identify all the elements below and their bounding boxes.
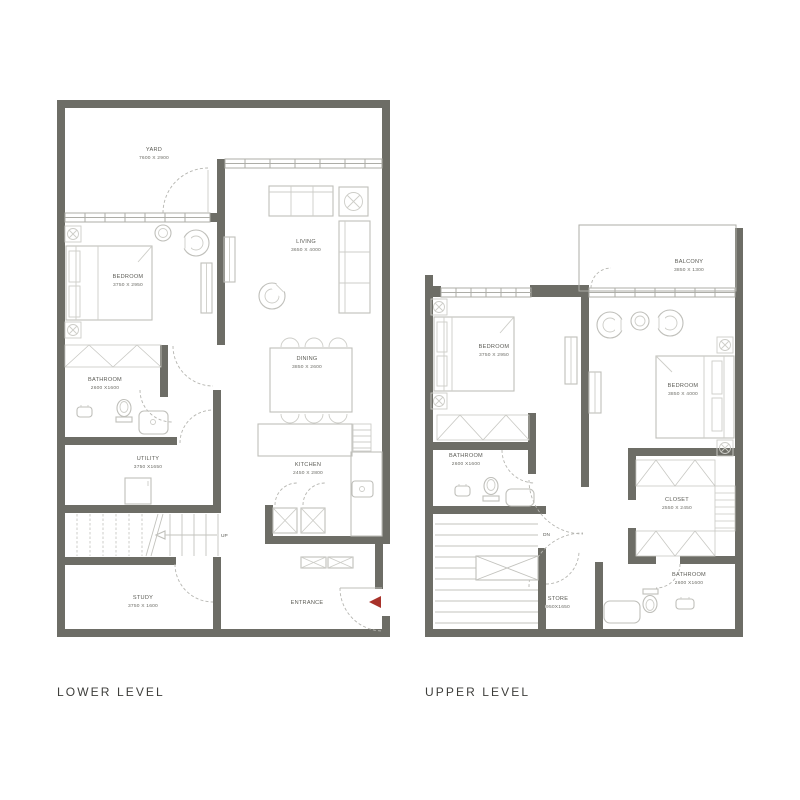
- nightstand-icon: [65, 226, 81, 242]
- washing-machine-icon: [125, 478, 151, 504]
- kitchen-sink-icon: [352, 481, 373, 497]
- room-label-balcony: BALCONY: [675, 259, 704, 265]
- room-label-bathroom: BATHROOM: [88, 377, 122, 383]
- lower-stairs: [77, 514, 218, 556]
- stairs-dn-label: DN: [543, 532, 550, 538]
- room-label-bedroom: BEDROOM: [113, 274, 144, 280]
- room-dims-kitchen: 2450 X 2800: [293, 470, 323, 476]
- bed-icon: [656, 356, 734, 438]
- store-door-swing: [546, 551, 579, 584]
- room-dims-balcony: 3850 X 1300: [674, 267, 704, 273]
- room-dims-living: 3650 X 4000: [291, 247, 321, 253]
- nightstand-icon: [431, 299, 447, 315]
- room-label-entrance: ENTRANCE: [291, 600, 324, 606]
- room-label-utility: UTILITY: [137, 456, 160, 462]
- lower-level-plan: YARD 7600 X 2900 BEDROOM 3750 X 2950 LIV…: [57, 100, 390, 637]
- shoe-cabinet-icon: [301, 557, 353, 568]
- coffee-table-icon: [631, 312, 649, 330]
- stairs-up-label: UP: [221, 533, 228, 539]
- room-dims-utility: 3750 X1650: [134, 464, 162, 470]
- kitchen-island-icon: [258, 424, 352, 456]
- room-label-kitchen: KITCHEN: [295, 462, 321, 468]
- sofa-icon: [339, 221, 370, 313]
- washbasin-icon: [77, 405, 92, 417]
- nightstand-icon: [431, 393, 447, 409]
- armchair-icon: [254, 275, 294, 315]
- upper-stairs: [435, 524, 538, 623]
- room-dims-bathroom-right: 2600 X1600: [675, 580, 703, 586]
- toilet-icon: [483, 478, 499, 502]
- upper-level-plan: BALCONY 3850 X 1300 BEDROOM 3750 X 2950 …: [425, 225, 743, 637]
- room-dims-bathroom: 2600 X1600: [91, 385, 119, 391]
- room-label-bathroom-left: BATHROOM: [449, 453, 483, 459]
- room-label-bathroom-right: BATHROOM: [672, 572, 706, 578]
- nightstand-icon: [717, 337, 733, 353]
- room-dims-yard: 7600 X 2900: [139, 155, 169, 161]
- room-label-closet: CLOSET: [665, 497, 689, 503]
- toilet-icon: [116, 400, 132, 423]
- room-dims-bedroom-right: 3850 X 4000: [668, 391, 698, 397]
- balcony-parapet: [579, 225, 736, 291]
- room-label-study: STUDY: [133, 595, 153, 601]
- washbasin-icon: [676, 597, 694, 609]
- room-dims-dining: 3850 X 2600: [292, 364, 322, 370]
- floor-plan-page: YARD 7600 X 2900 BEDROOM 3750 X 2950 LIV…: [0, 0, 800, 800]
- dining-table-icon: [270, 338, 352, 423]
- armchair-icon: [597, 312, 627, 338]
- nightstand-icon: [65, 322, 81, 338]
- room-label-bedroom-left: BEDROOM: [479, 344, 510, 350]
- stove-icon: [273, 508, 325, 533]
- room-dims-store: 950X1650: [546, 604, 570, 610]
- entrance-arrow-icon: [369, 596, 381, 608]
- floor-plan-canvas: YARD 7600 X 2900 BEDROOM 3750 X 2950 LIV…: [0, 0, 800, 800]
- lower-wardrobe-hatch: [65, 345, 161, 367]
- room-dims-bedroom: 3750 X 2950: [113, 282, 143, 288]
- yard-door-swing: [163, 168, 208, 213]
- washbasin-icon: [455, 484, 470, 496]
- armchair-icon: [179, 230, 209, 256]
- room-dims-bathroom-left: 2600 X1600: [452, 461, 480, 467]
- sofa-icon: [269, 186, 333, 216]
- bedroom-door-swing: [173, 346, 213, 386]
- balcony-door-swing: [591, 268, 611, 288]
- room-label-bedroom-right: BEDROOM: [668, 383, 699, 389]
- pantry-shelf-icon: [353, 424, 371, 451]
- armchair-icon: [653, 310, 683, 336]
- room-label-store: STORE: [548, 596, 568, 602]
- toilet-icon: [643, 589, 658, 613]
- lower-level-caption: LOWER LEVEL: [57, 685, 165, 699]
- room-dims-bedroom-left: 3750 X 2950: [479, 352, 509, 358]
- entrance-door-swing: [340, 588, 383, 631]
- study-door-swing: [175, 564, 213, 602]
- lower-doors: [140, 168, 383, 631]
- room-dims-study: 3750 X 1600: [128, 603, 158, 609]
- shower-icon: [139, 411, 168, 434]
- room-label-dining: DINING: [296, 356, 317, 362]
- bathtub-icon: [604, 601, 640, 623]
- room-label-living: LIVING: [296, 239, 316, 245]
- side-table-icon: [339, 187, 368, 216]
- upper-level-caption: UPPER LEVEL: [425, 685, 530, 699]
- stool-icon: [155, 225, 171, 241]
- room-label-yard: YARD: [146, 147, 162, 153]
- room-dims-closet: 2550 X 2450: [662, 505, 692, 511]
- utility-door-swing: [180, 410, 213, 443]
